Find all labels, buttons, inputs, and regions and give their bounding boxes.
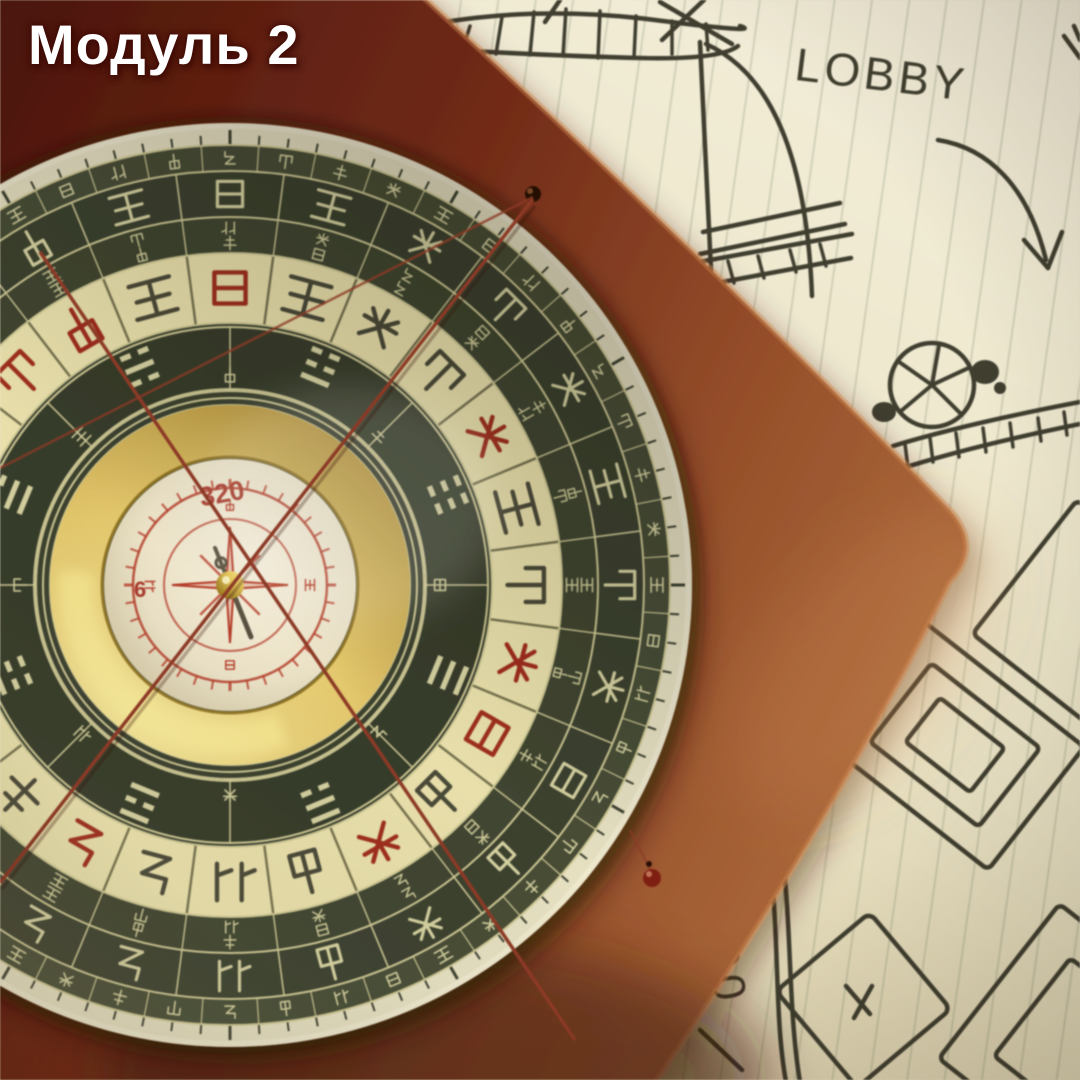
luopan-photograph: LOBBY3903206 — [0, 0, 1080, 1080]
glass-glare — [200, 387, 500, 623]
module-title-overlay: Модуль 2 — [28, 12, 299, 77]
photo-stage: LOBBY3903206 Модуль 2 — [0, 0, 1080, 1080]
scene-svg: LOBBY3903206 — [0, 0, 1080, 1080]
thread-bead — [643, 869, 661, 887]
